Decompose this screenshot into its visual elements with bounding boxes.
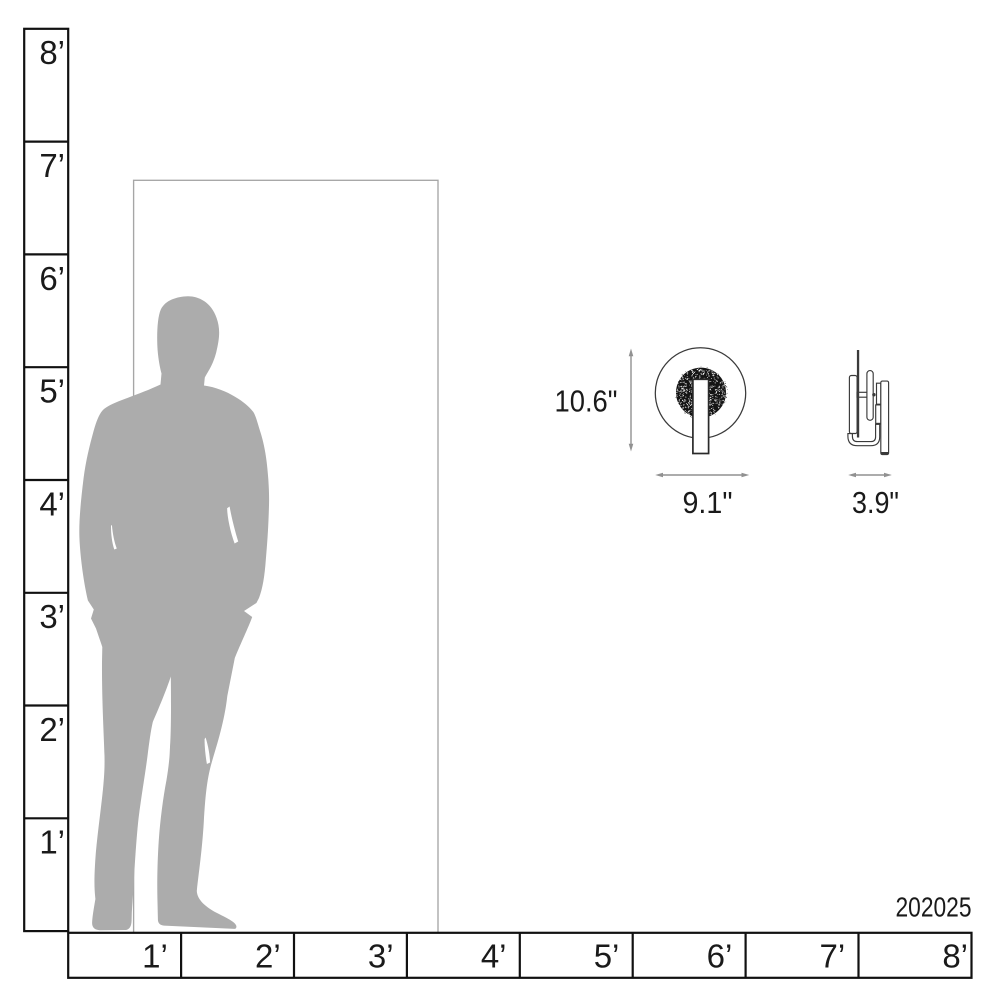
svg-text:1’: 1’ (142, 937, 168, 974)
svg-text:4’: 4’ (39, 485, 65, 522)
svg-text:5’: 5’ (594, 937, 620, 974)
svg-text:6’: 6’ (707, 937, 733, 974)
svg-text:2’: 2’ (255, 937, 281, 974)
svg-text:8’: 8’ (39, 34, 65, 71)
svg-text:2’: 2’ (39, 711, 65, 748)
svg-text:8’: 8’ (942, 937, 968, 974)
svg-text:10.6": 10.6" (555, 384, 618, 419)
svg-text:3’: 3’ (39, 598, 65, 635)
svg-text:7’: 7’ (39, 147, 65, 184)
svg-text:4’: 4’ (481, 937, 507, 974)
svg-text:5’: 5’ (39, 373, 65, 410)
svg-text:202025: 202025 (896, 892, 972, 923)
svg-text:9.1": 9.1" (683, 485, 733, 520)
svg-text:1’: 1’ (39, 824, 65, 861)
svg-text:3’: 3’ (368, 937, 394, 974)
svg-text:3.9": 3.9" (852, 485, 899, 520)
svg-text:7’: 7’ (820, 937, 846, 974)
svg-text:6’: 6’ (39, 260, 65, 297)
